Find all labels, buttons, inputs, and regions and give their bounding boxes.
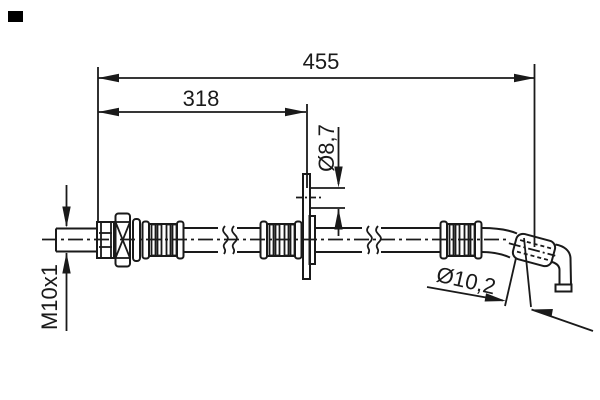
label-overall-length: 455 [291,50,351,74]
crimp-collar-left [143,222,184,259]
label-bracket-hole-diameter: Ø8,7 [315,118,339,178]
label-thread-size: M10x1 [38,261,62,333]
drawing-canvas: 455 318 Ø8,7 M10x1 Ø10,2 [0,0,600,400]
dim-m10x1 [62,185,70,331]
label-intermediate-length: 318 [171,87,231,111]
dim-318 [98,104,307,188]
